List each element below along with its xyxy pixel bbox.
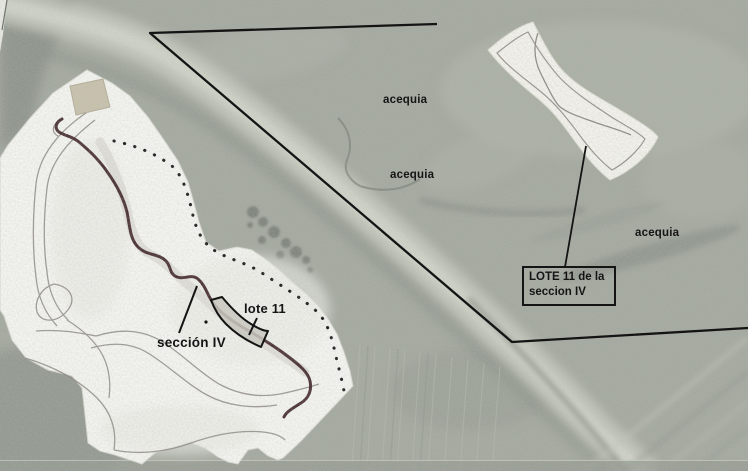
callout-line-2: seccion IV — [529, 285, 609, 300]
reference-dot — [204, 320, 207, 323]
annotated-aerial-map: acequia acequia acequia lote 11 sección … — [0, 0, 748, 471]
callout-line-1: LOTE 11 de la — [529, 270, 609, 285]
acequia-label-right: acequia — [635, 227, 679, 239]
lote-11-label: lote 11 — [244, 301, 286, 316]
lote-11-callout-box: LOTE 11 de la seccion IV — [522, 266, 616, 306]
seccion-iv-label: sección IV — [157, 335, 226, 350]
acequia-label-top: acequia — [383, 94, 427, 106]
acequia-label-middle: acequia — [390, 169, 434, 181]
